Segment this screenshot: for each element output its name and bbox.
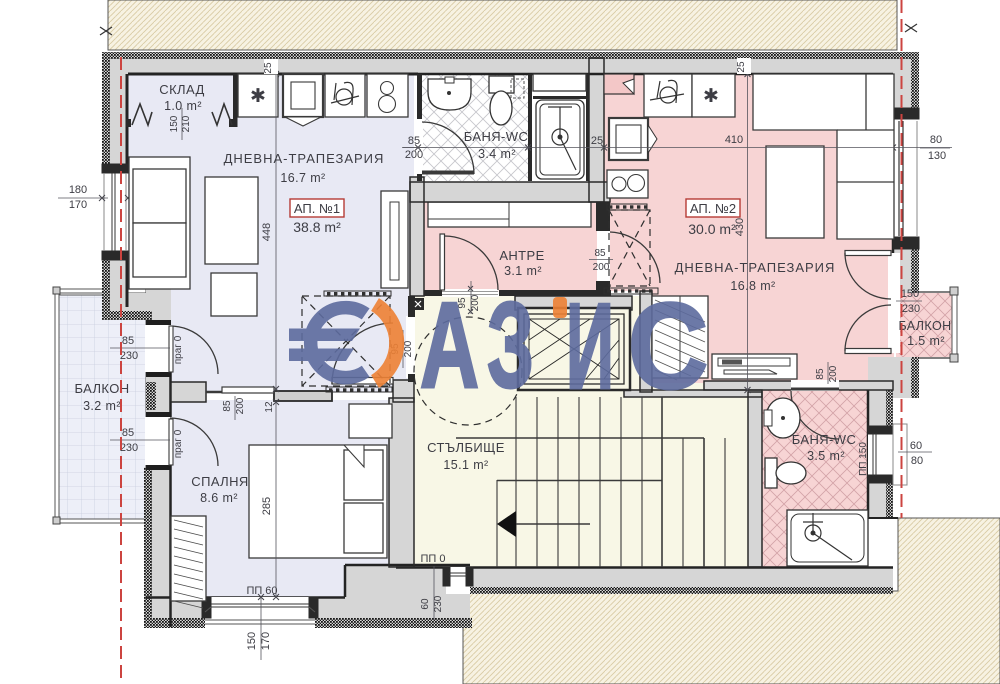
svg-text:праг 0: праг 0 (173, 335, 184, 364)
svg-text:80: 80 (911, 455, 923, 467)
svg-text:38.8 m²: 38.8 m² (293, 219, 341, 235)
svg-text:праг 0: праг 0 (173, 429, 184, 458)
svg-text:З: З (487, 277, 534, 413)
svg-text:430: 430 (734, 218, 746, 236)
svg-text:АП. №1: АП. №1 (294, 201, 340, 216)
svg-text:85: 85 (122, 427, 134, 439)
svg-text:200: 200 (403, 340, 414, 357)
svg-text:ДНЕВНА-ТРАПЕЗАРИЯ: ДНЕВНА-ТРАПЕЗАРИЯ (675, 260, 836, 275)
svg-text:ПП 60: ПП 60 (246, 585, 277, 597)
svg-text:БАНЯ-WC: БАНЯ-WC (464, 129, 528, 144)
svg-text:85: 85 (408, 135, 420, 147)
svg-text:448: 448 (261, 223, 273, 241)
svg-text:60: 60 (420, 598, 431, 610)
svg-text:С: С (628, 278, 708, 414)
svg-text:8.6 m²: 8.6 m² (200, 491, 238, 505)
svg-text:1.5 m²: 1.5 m² (907, 334, 945, 348)
svg-text:230: 230 (902, 303, 920, 315)
svg-text:230: 230 (120, 442, 138, 454)
svg-text:210: 210 (181, 115, 192, 132)
svg-text:150: 150 (169, 115, 180, 132)
svg-text:1.0 m²: 1.0 m² (164, 99, 202, 113)
svg-text:15.1 m²: 15.1 m² (443, 458, 488, 472)
svg-text:150: 150 (246, 632, 258, 650)
svg-text:И: И (566, 278, 614, 414)
svg-text:БАЛКОН: БАЛКОН (898, 319, 951, 333)
svg-text:ПП 150: ПП 150 (858, 442, 869, 476)
svg-text:130: 130 (928, 150, 946, 162)
svg-text:25: 25 (736, 61, 747, 73)
svg-text:85: 85 (594, 248, 606, 259)
svg-text:А: А (420, 277, 479, 413)
svg-text:АП. №2: АП. №2 (690, 201, 736, 216)
svg-text:12: 12 (264, 401, 275, 413)
svg-text:60: 60 (910, 440, 922, 452)
svg-text:16.7 m²: 16.7 m² (280, 171, 325, 185)
svg-text:80: 80 (930, 134, 942, 146)
svg-text:180: 180 (69, 184, 87, 196)
svg-text:200: 200 (828, 365, 839, 382)
svg-text:200: 200 (405, 149, 423, 161)
svg-text:СКЛАД: СКЛАД (159, 82, 204, 97)
svg-text:25: 25 (263, 62, 274, 74)
svg-text:230: 230 (433, 595, 444, 612)
svg-text:85: 85 (122, 335, 134, 347)
svg-text:✱: ✱ (703, 86, 719, 107)
svg-text:200: 200 (593, 262, 610, 273)
svg-text:✱: ✱ (250, 86, 266, 107)
svg-text:170: 170 (69, 199, 87, 211)
svg-text:3.4 m²: 3.4 m² (478, 147, 516, 161)
svg-text:СТЪЛБИЩЕ: СТЪЛБИЩЕ (427, 440, 505, 455)
svg-text:85: 85 (815, 368, 826, 380)
svg-text:ДНЕВНА-ТРАПЕЗАРИЯ: ДНЕВНА-ТРАПЕЗАРИЯ (224, 151, 385, 166)
svg-text:85: 85 (222, 400, 233, 412)
svg-text:285: 285 (261, 497, 273, 515)
svg-text:3.2 m²: 3.2 m² (83, 399, 121, 413)
svg-text:230: 230 (120, 350, 138, 362)
svg-text:25: 25 (591, 135, 603, 147)
svg-text:3.1 m²: 3.1 m² (504, 264, 542, 278)
svg-text:СПАЛНЯ: СПАЛНЯ (191, 474, 248, 489)
svg-text:170: 170 (260, 632, 272, 650)
svg-text:16.8 m²: 16.8 m² (730, 279, 775, 293)
svg-text:150: 150 (901, 288, 919, 300)
svg-text:3.5 m²: 3.5 m² (807, 449, 845, 463)
svg-text:ПП 0: ПП 0 (421, 553, 446, 565)
svg-text:410: 410 (725, 134, 743, 146)
svg-text:200: 200 (235, 397, 246, 414)
svg-text:БАНЯ-WC: БАНЯ-WC (792, 432, 856, 447)
svg-text:30.0 m²: 30.0 m² (688, 221, 736, 237)
svg-text:АНТРЕ: АНТРЕ (499, 248, 544, 263)
